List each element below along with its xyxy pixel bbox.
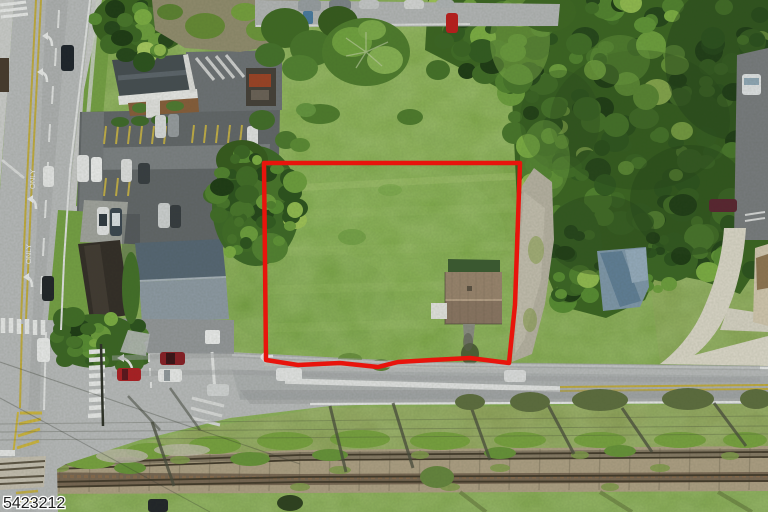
svg-text:5423212: 5423212 [3, 495, 65, 512]
